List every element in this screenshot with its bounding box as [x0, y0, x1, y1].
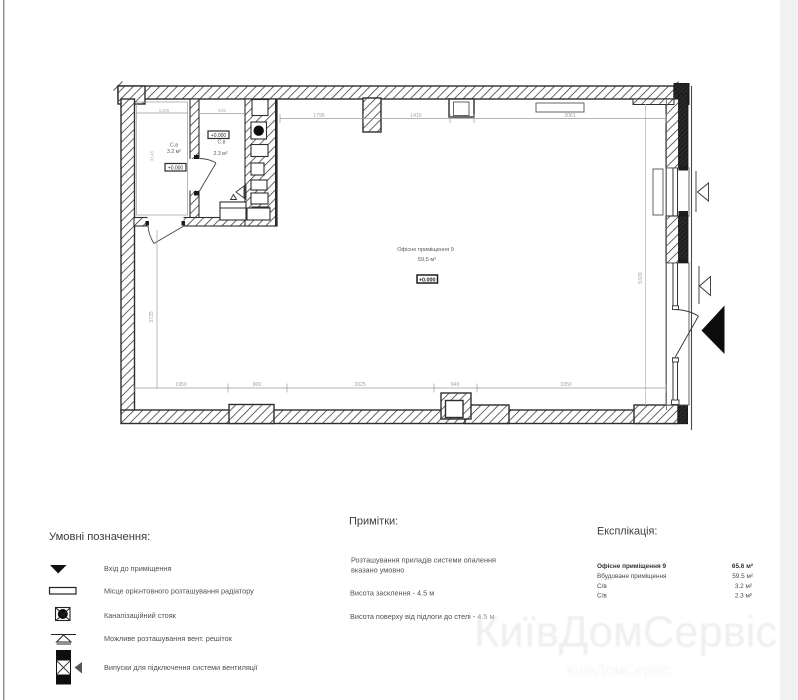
svg-text:940: 940: [451, 382, 460, 388]
svg-text:Висота засклення - 4.5 м: Висота засклення - 4.5 м: [350, 589, 434, 598]
svg-text:1415: 1415: [410, 113, 422, 119]
svg-text:С/в: С/в: [597, 592, 607, 599]
svg-text:3325: 3325: [354, 382, 366, 388]
svg-text:59.5 м²: 59.5 м²: [732, 573, 753, 580]
svg-text:945: 945: [218, 108, 226, 114]
svg-text:3145: 3145: [150, 150, 156, 161]
svg-text:+0.000: +0.000: [419, 278, 436, 284]
svg-text:2.3 м²: 2.3 м²: [735, 592, 752, 599]
svg-text:3061: 3061: [564, 113, 576, 119]
svg-text:Експлікація:: Експлікація:: [597, 526, 657, 538]
svg-text:Офісне приміщення 9: Офісне приміщення 9: [597, 562, 666, 570]
svg-text:С/в: С/в: [597, 583, 607, 590]
svg-text:1950: 1950: [175, 382, 187, 388]
svg-text:Каналізаційний стояк: Каналізаційний стояк: [104, 611, 177, 620]
svg-text:Можливе розташування вент. реш: Можливе розташування вент. решіток: [104, 634, 233, 643]
svg-text:Вхід до приміщення: Вхід до приміщення: [104, 564, 171, 573]
svg-text:2.3 м²: 2.3 м²: [214, 151, 228, 157]
svg-text:Примітки:: Примітки:: [349, 516, 398, 528]
svg-text:3725: 3725: [149, 311, 155, 323]
svg-text:3350: 3350: [560, 382, 572, 388]
svg-text:Умовні позначення:: Умовні позначення:: [49, 531, 150, 543]
svg-text:С.в: С.в: [218, 140, 226, 146]
svg-text:+0.000: +0.000: [211, 133, 227, 139]
svg-text:59,5 м²: 59,5 м²: [418, 257, 436, 263]
svg-text:3.2 м²: 3.2 м²: [735, 583, 752, 590]
svg-text:Офісне приміщення 9: Офісне приміщення 9: [397, 247, 454, 253]
svg-text:Місце орієнтовного розташуванн: Місце орієнтовного розташування радіатор…: [104, 587, 254, 596]
svg-text:Висота поверху від підлоги до: Висота поверху від підлоги до стелі - 4.…: [350, 612, 495, 621]
svg-text:65.6 м²: 65.6 м²: [732, 563, 753, 570]
svg-text:вказано умовно: вказано умовно: [351, 566, 404, 575]
svg-text:КиївДомСервіс: КиївДомСервіс: [474, 609, 777, 657]
svg-text:1200: 1200: [159, 108, 170, 114]
svg-text:Розташування приладів системи: Розташування приладів системи опалення: [351, 556, 496, 565]
svg-text:С.в: С.в: [170, 143, 178, 149]
svg-text:Вбудоване приміщення: Вбудоване приміщення: [597, 572, 667, 580]
svg-text:900: 900: [253, 382, 262, 388]
svg-text:+0.000: +0.000: [168, 165, 184, 171]
svg-text:КиївДомСервіс: КиївДомСервіс: [566, 662, 671, 679]
svg-text:5320: 5320: [638, 272, 644, 284]
svg-text:3.2 м²: 3.2 м²: [167, 149, 181, 155]
svg-text:1795: 1795: [313, 113, 325, 119]
svg-text:Випуски для підключення систем: Випуски для підключення системи вентиляц…: [104, 663, 258, 672]
